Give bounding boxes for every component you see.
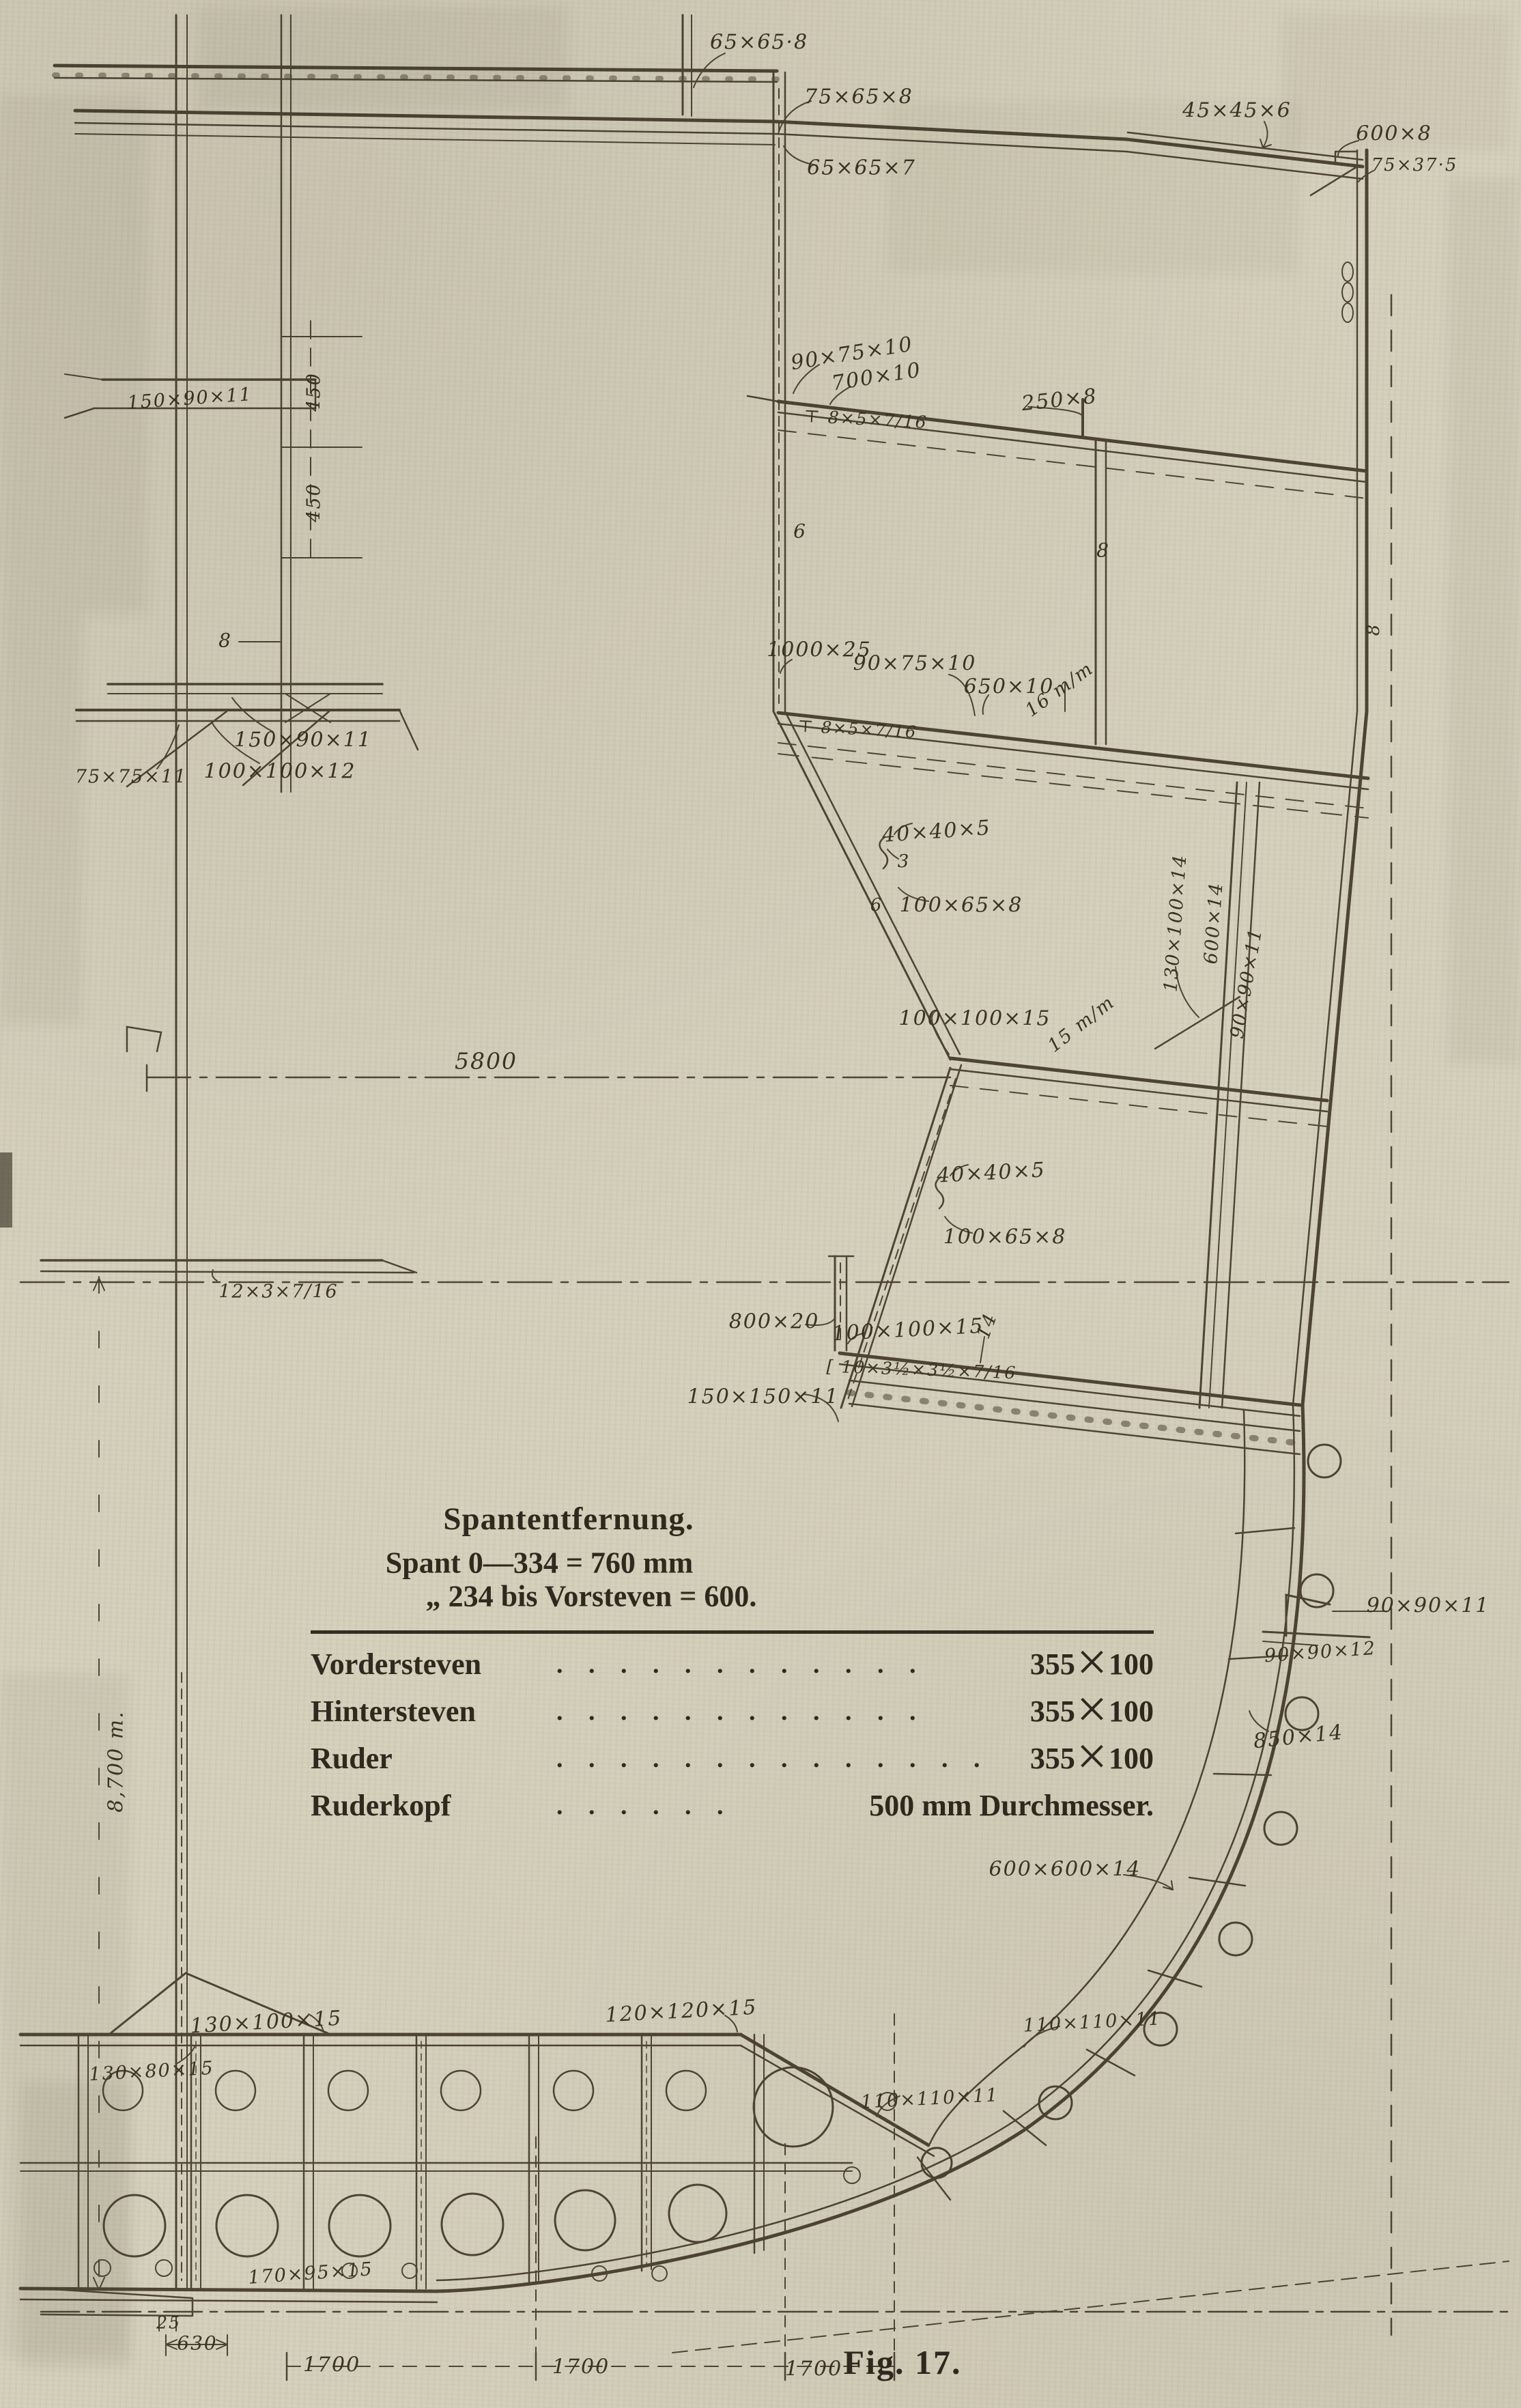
row-label: Ruderkopf — [311, 1788, 550, 1823]
notes-line-2: „ 234 bis Vorsteven = 600. — [426, 1579, 757, 1614]
table-row: Vordersteven . . . . . . . . . . . . 355… — [311, 1641, 1154, 1688]
size-b: 100 — [1109, 1647, 1154, 1682]
spec-table: Vordersteven . . . . . . . . . . . . 355… — [311, 1630, 1154, 1829]
blueprint-page: 65×65·875×65×865×65×745×45×6600×875×37·5… — [0, 0, 1521, 2408]
times-glyph: × — [1077, 1646, 1107, 1679]
table-row: Ruderkopf . . . . . . 500 mm Durchmesser… — [311, 1782, 1154, 1829]
size-a: 355 — [1030, 1694, 1075, 1729]
row-value: 355 × 100 — [1030, 1694, 1154, 1729]
size-b: 100 — [1109, 1694, 1154, 1729]
leader-dots: . . . . . . . . . . . . . . — [550, 1744, 1030, 1774]
table-row: Hintersteven . . . . . . . . . . . . 355… — [311, 1688, 1154, 1735]
table-rule — [311, 1630, 1154, 1634]
row-value: 355 × 100 — [1030, 1741, 1154, 1776]
table-row: Ruder . . . . . . . . . . . . . . 355 × … — [311, 1735, 1154, 1782]
notes-line-1: Spant 0—334 = 760 mm — [386, 1546, 693, 1581]
row-value: 500 mm Durchmesser. — [869, 1788, 1154, 1823]
times-glyph: × — [1077, 1693, 1107, 1726]
leader-dots: . . . . . . . . . . . . — [550, 1649, 1030, 1680]
row-label: Ruder — [311, 1741, 550, 1776]
leader-dots: . . . . . . — [550, 1791, 869, 1821]
leader-dots: . . . . . . . . . . . . — [550, 1697, 1030, 1727]
notes-heading: Spantentfernung. — [443, 1501, 694, 1538]
row-value: 355 × 100 — [1030, 1647, 1154, 1682]
figure-caption: Fig. 17. — [844, 2342, 962, 2382]
size-a: 355 — [1030, 1741, 1075, 1776]
row-label: Hintersteven — [311, 1694, 550, 1729]
drawing-linework — [0, 0, 1521, 2408]
size-a: 355 — [1030, 1647, 1075, 1682]
size-b: 100 — [1109, 1741, 1154, 1776]
times-glyph: × — [1077, 1740, 1107, 1773]
row-label: Vordersteven — [311, 1647, 550, 1682]
